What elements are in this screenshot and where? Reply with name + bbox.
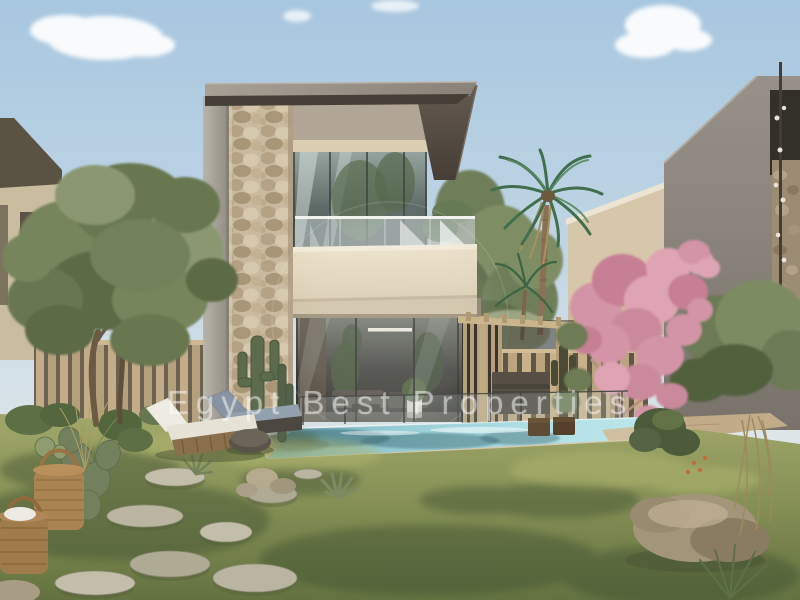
white-cloth: [4, 507, 36, 521]
right-house-stone-wall: [772, 160, 800, 300]
roof-slab: [205, 82, 477, 106]
villa-exterior-render: Egypt Best Properties: [0, 0, 800, 600]
scene-illustration: [0, 0, 800, 600]
basket-cloth: [0, 498, 48, 574]
roller-blind-box: [293, 140, 427, 152]
